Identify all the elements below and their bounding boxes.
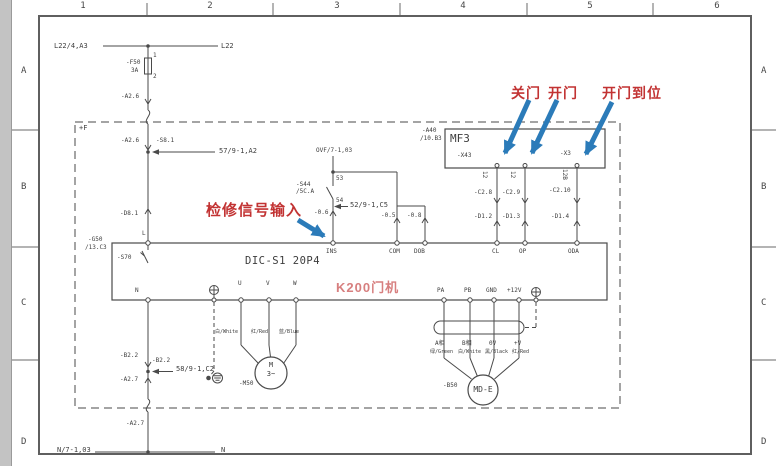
wire-l22: L22 xyxy=(221,42,234,50)
wire-c210: -C2.10 xyxy=(549,188,571,195)
encoder-v-color: 红/Red xyxy=(512,350,529,356)
wire-a26-top: -A2.6 xyxy=(121,94,139,101)
annotation-door-open: 开门 xyxy=(548,83,578,103)
arrow-inspection-input xyxy=(298,220,324,236)
ref-sheet-52: 52/9-1,C5 xyxy=(350,201,388,209)
wire-n-source: N/7-1,03 xyxy=(57,446,91,454)
encoder-ref: -B50 xyxy=(443,383,457,390)
wire-n-end: N xyxy=(221,446,225,454)
terminal-gnd: GND xyxy=(486,288,497,295)
contact-pin-54: 54 xyxy=(336,198,343,205)
ruler-row-C-left: C xyxy=(21,298,26,308)
wire-06: -0.6 xyxy=(314,210,328,217)
wire-a27-b: -A2.7 xyxy=(126,421,144,428)
ruler-row-A-left: A xyxy=(21,66,26,76)
wire-a27-a: -A2.7 xyxy=(120,377,138,384)
wire-c28: -C2.8 xyxy=(474,190,492,197)
wire-w-color: 蓝/Blue xyxy=(279,330,299,336)
terminal-ins: INS xyxy=(326,249,337,256)
arrow-door-close xyxy=(505,100,529,153)
zone-f-label: +F xyxy=(79,124,87,132)
contact-pin-53: 53 xyxy=(336,176,343,183)
wire-d14: -D1.4 xyxy=(551,214,569,221)
wire-c29: -C2.9 xyxy=(502,190,520,197)
wires xyxy=(95,46,580,452)
pin-12b-c: 12B xyxy=(560,169,567,180)
ref-a40-loc: /10.B3 xyxy=(420,136,442,143)
motor-symbol-label: M xyxy=(269,361,273,369)
switch-s44-loc: /5C.A xyxy=(296,189,314,196)
wire-b22-a: -B2.2 xyxy=(120,353,138,360)
ruler-row-D-right: D xyxy=(761,437,766,447)
encoder-a-phase: A相 xyxy=(435,341,445,348)
terminal-u: U xyxy=(238,281,242,288)
motor-phases-label: 3~ xyxy=(267,370,275,378)
wire-d13: -D1.3 xyxy=(502,214,520,221)
ruler-col-4: 4 xyxy=(460,1,465,11)
ruler-row-A-right: A xyxy=(761,66,766,76)
encoder-0-color: 黑/Black xyxy=(485,350,508,356)
terminal-dob: DOB xyxy=(414,249,425,256)
terminal-oda: ODA xyxy=(568,249,579,256)
ruler-ticks xyxy=(12,3,776,360)
motor-ref: -M50 xyxy=(239,381,253,388)
ref-g50: -G50 xyxy=(88,237,102,244)
annotation-door-close: 关门 xyxy=(511,83,541,103)
terminal-x43: -X43 xyxy=(457,153,471,160)
ruler-col-3: 3 xyxy=(334,1,339,11)
encoder-b-color: 白/White xyxy=(458,350,481,356)
terminal-op: OP xyxy=(519,249,526,256)
cable-shield xyxy=(434,321,524,334)
terminal-v: V xyxy=(266,281,270,288)
ruler-col-2: 2 xyxy=(207,1,212,11)
mf3-board-label: MF3 xyxy=(450,132,470,145)
ref-ovf: OVF/7-1,03 xyxy=(316,148,352,155)
fuse-rating: 3A xyxy=(131,68,138,75)
ruler-col-5: 5 xyxy=(587,1,592,11)
encoder-plusv: +V xyxy=(514,341,521,348)
terminal-w: W xyxy=(293,281,297,288)
encoder-a-color: 绿/Green xyxy=(430,350,453,356)
wire-b22-b: -B2.2 xyxy=(152,358,170,365)
terminal-pa: PA xyxy=(437,288,444,295)
terminal-cl: CL xyxy=(492,249,499,256)
enclosure-f-dashed-box xyxy=(75,122,620,408)
encoder-model-label: MD-E xyxy=(473,385,492,394)
ruler-col-1: 1 xyxy=(80,1,85,11)
wire-05: -0.5 xyxy=(381,213,395,220)
ruler-col-6: 6 xyxy=(714,1,719,11)
ref-g50-loc: /13.C3 xyxy=(85,245,107,252)
annotation-door-open-in-place: 开门到位 xyxy=(602,83,662,103)
wire-u-color: 白/White xyxy=(215,330,238,336)
terminal-n: N xyxy=(135,288,139,295)
fuse-pin-2: 2 xyxy=(153,74,157,81)
terminal-com: COM xyxy=(389,249,400,256)
switch-s70: -S70 xyxy=(117,255,131,262)
wire-v-color: 红/Red xyxy=(251,330,268,336)
terminal-l: L xyxy=(142,231,146,238)
ruler-row-D-left: D xyxy=(21,437,26,447)
arrow-door-open xyxy=(532,100,557,153)
terminal-x3: -X3 xyxy=(560,151,571,158)
annotation-inspection-input: 检修信号输入 xyxy=(206,199,302,220)
earth-links xyxy=(210,302,537,377)
wiring-diagram xyxy=(0,0,777,466)
ruler-row-B-left: B xyxy=(21,182,26,192)
ref-sheet-57: 57/9-1,A2 xyxy=(219,147,257,155)
controller-model-label: DIC-S1 20P4 xyxy=(245,255,320,267)
machine-name-label: K200门机 xyxy=(336,277,399,296)
encoder-0v: 0V xyxy=(489,341,496,348)
encoder-b-phase: B相 xyxy=(462,341,472,348)
ruler-row-B-right: B xyxy=(761,182,766,192)
wire-08: -0.8 xyxy=(407,213,421,220)
fuse-pin-1: 1 xyxy=(153,53,157,60)
schematic-page: 123456 AABBCCDD L22/4,A3L22-F503A12-A2.6… xyxy=(0,0,777,466)
terminal-pb: PB xyxy=(464,288,471,295)
arrow-door-open-in-place xyxy=(586,102,612,154)
junction-dots xyxy=(146,44,335,454)
connector-s81: -S8.1 xyxy=(156,138,174,145)
ref-a40: -A40 xyxy=(422,128,436,135)
connector-d81: -D8.1 xyxy=(120,211,138,218)
wire-d12: -D1.2 xyxy=(474,214,492,221)
ruler-row-C-right: C xyxy=(761,298,766,308)
wire-l22-source: L22/4,A3 xyxy=(54,42,88,50)
wire-a26: -A2.6 xyxy=(121,138,139,145)
fuse-ref: -F50 xyxy=(126,60,140,67)
terminal-12v: +12V xyxy=(507,288,521,295)
pin-12-b: 12 xyxy=(508,171,515,178)
pin-12-a: 12 xyxy=(480,171,487,178)
ref-sheet-58: 58/9-1,C2 xyxy=(176,365,214,373)
